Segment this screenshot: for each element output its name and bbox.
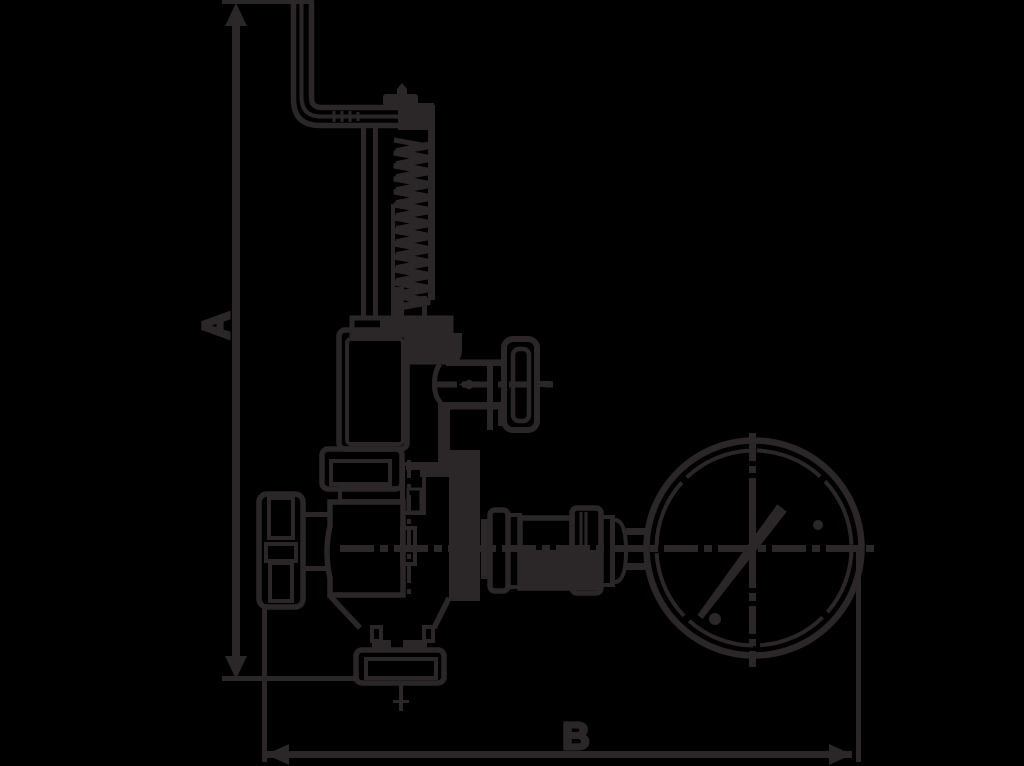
svg-text:A: A [196,312,238,339]
svg-text:B: B [562,716,589,758]
